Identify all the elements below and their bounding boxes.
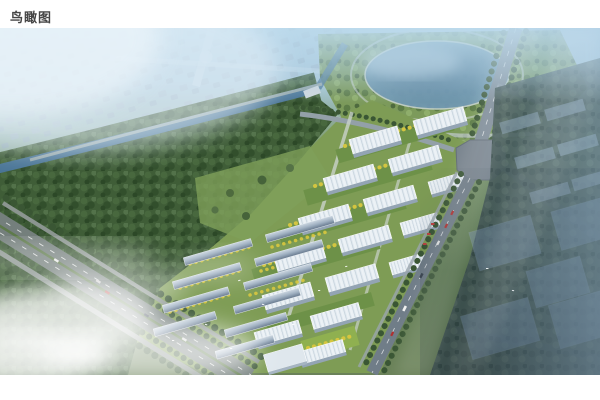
aerial-rendering-figure [0,28,600,375]
page-title: 鸟瞰图 [10,7,52,26]
page: 鸟瞰图 [0,0,600,400]
